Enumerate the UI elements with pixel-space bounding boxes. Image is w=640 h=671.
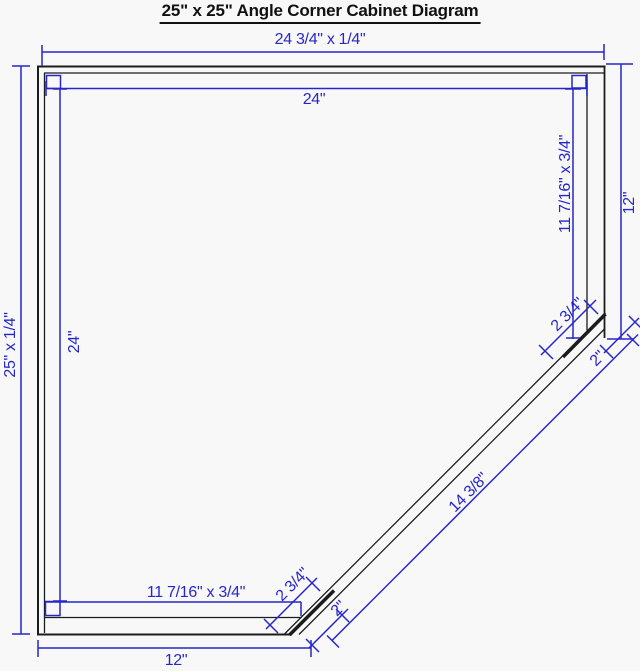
dim-bottom-width: 12" bbox=[38, 640, 311, 669]
cabinet-diagram: 24 3/4" x 1/4" 24" 25" x 1/4" 24" 11 7/1… bbox=[0, 0, 640, 671]
dim-top-back-panel: 24 3/4" x 1/4" bbox=[42, 31, 604, 66]
dim-right-depth: 12" bbox=[606, 64, 638, 339]
corner-blocks bbox=[46, 76, 587, 616]
dim-front-stile-bottom-label: 2 3/4" bbox=[273, 565, 313, 605]
corner-block-top-right bbox=[572, 76, 586, 89]
dim-top-back-panel-label: 24 3/4" x 1/4" bbox=[275, 31, 366, 48]
dim-bottom-side-panel: 11 7/16" x 3/4" bbox=[46, 584, 301, 616]
corner-block-top-left bbox=[47, 76, 61, 89]
angled-front-bottom-stile bbox=[290, 591, 335, 636]
dim-right-side-panel-label: 11 7/16" x 3/4" bbox=[557, 135, 574, 233]
dim-inner-height-label: 24" bbox=[66, 331, 83, 354]
corner-block-bottom-left bbox=[46, 602, 61, 616]
dim-right-depth-label: 12" bbox=[621, 192, 638, 215]
dim-angled-front-opening: 14 3/8" bbox=[327, 334, 639, 648]
dim-inner-width-label: 24" bbox=[303, 91, 326, 108]
dim-angled-front-opening-label: 14 3/8" bbox=[446, 470, 492, 516]
dim-inner-width: 24" bbox=[46, 81, 587, 108]
angled-front-inner-line bbox=[284, 313, 606, 635]
dim-inner-height: 24" bbox=[53, 89, 83, 601]
angled-front-outer-line bbox=[299, 329, 605, 635]
dim-left-back-panel-label: 25" x 1/4" bbox=[2, 312, 19, 377]
dim-end-cap-bottom-label: 2" bbox=[328, 598, 350, 620]
dim-bottom-side-panel-label: 11 7/16" x 3/4" bbox=[147, 584, 245, 601]
cabinet-outline bbox=[37, 66, 606, 635]
dim-left-back-panel: 25" x 1/4" bbox=[2, 66, 30, 634]
dim-bottom-width-label: 12" bbox=[165, 652, 188, 669]
